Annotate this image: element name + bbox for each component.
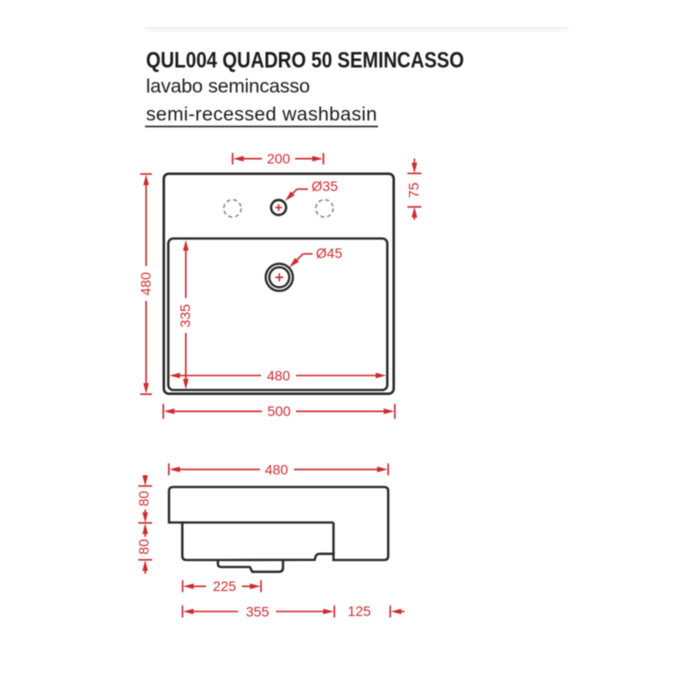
- svg-text:200: 200: [267, 151, 291, 167]
- svg-text:355: 355: [246, 603, 270, 619]
- svg-text:335: 335: [177, 304, 193, 328]
- svg-text:480: 480: [265, 461, 289, 477]
- svg-text:80: 80: [135, 491, 151, 507]
- svg-text:Ø35: Ø35: [312, 178, 339, 194]
- svg-text:semi-recessed washbasin: semi-recessed washbasin: [146, 104, 377, 126]
- svg-text:125: 125: [348, 603, 372, 619]
- svg-text:80: 80: [135, 539, 151, 555]
- svg-text:500: 500: [267, 403, 291, 419]
- svg-text:lavabo semincasso: lavabo semincasso: [146, 76, 310, 98]
- svg-text:480: 480: [267, 367, 291, 383]
- svg-text:QUL004 QUADRO 50 SEMINCASSO: QUL004 QUADRO 50 SEMINCASSO: [146, 48, 464, 73]
- svg-text:75: 75: [406, 182, 422, 198]
- svg-text:Ø45: Ø45: [316, 245, 343, 261]
- svg-text:480: 480: [138, 272, 154, 296]
- svg-text:225: 225: [213, 578, 237, 594]
